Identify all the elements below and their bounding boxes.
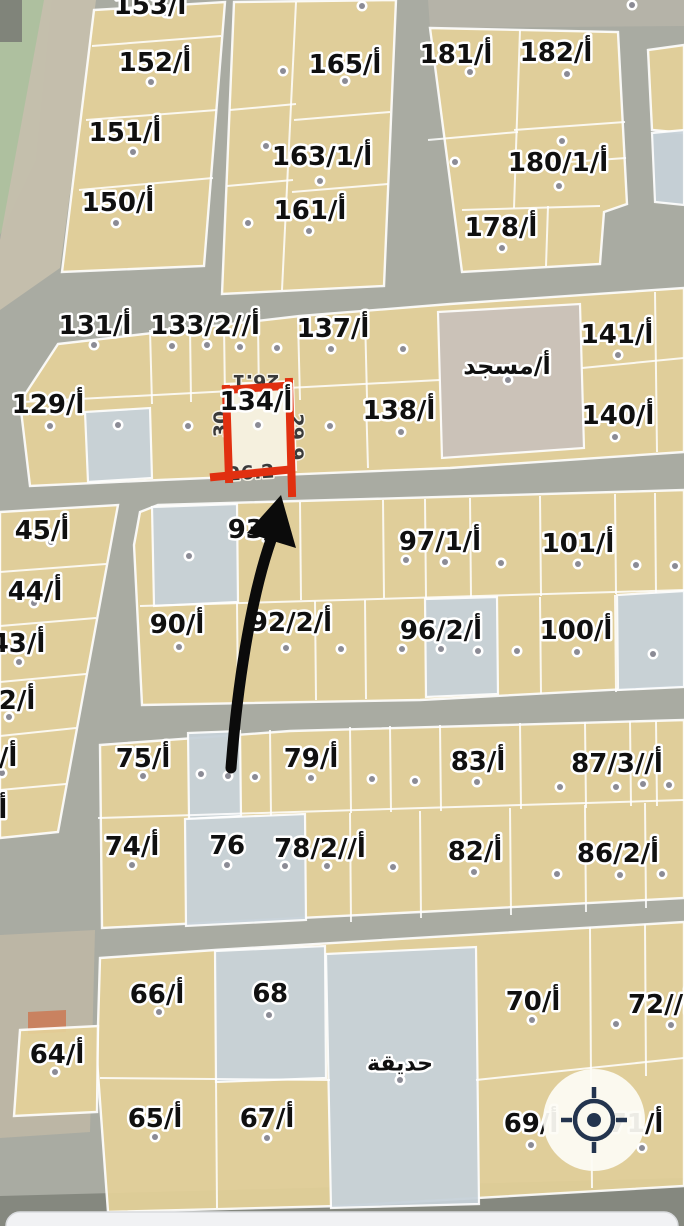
parcel-label: أ/131	[59, 308, 132, 341]
parcel-boundary-line	[440, 725, 441, 811]
parcel-dot-center	[198, 771, 204, 777]
parcel-dot-center	[499, 245, 505, 251]
parcel-label: أ/44	[8, 574, 63, 607]
parcel-label: أ/152	[119, 45, 192, 78]
parcel-label: أ/141	[581, 317, 654, 350]
parcel-dot-center	[47, 423, 53, 429]
parcel-label: أ//78/2	[274, 831, 366, 864]
parcel-dot-center	[557, 784, 563, 790]
cell-blue-right-100	[617, 591, 684, 690]
parcel-label: أ/92/2	[250, 605, 332, 638]
parcel-label: أ/134	[220, 384, 293, 417]
parcel-label: أ/138	[363, 393, 436, 426]
parcel-label: أ/180/1	[508, 145, 608, 178]
parcel-label: أ/150	[82, 185, 155, 218]
parcel-boundary-line	[615, 494, 616, 594]
parcel-label: حديقة	[367, 1052, 433, 1077]
parcel-dot-center	[113, 220, 119, 226]
parcel-dot-center	[16, 659, 22, 665]
top-right-road	[428, 0, 684, 28]
parcel-dot-center	[672, 563, 678, 569]
parcel-boundary-line	[510, 808, 511, 915]
parcel-label: أ/137	[297, 311, 370, 344]
parcel-label: أ/101	[542, 526, 615, 559]
parcel-label: أ/مسجد	[463, 350, 550, 380]
parcel-dot-center	[264, 1135, 270, 1141]
parcel-label: أ/181	[420, 37, 493, 70]
cell-blue-above-90	[152, 504, 238, 606]
parcel-label: أ/75	[116, 741, 171, 774]
parcel-dot-center	[280, 68, 286, 74]
parcel-dot-center	[306, 228, 312, 234]
parcel-dot-center	[615, 352, 621, 358]
parcel-label: أ/42	[0, 683, 35, 716]
parcel-dot-center	[390, 864, 396, 870]
parcel-dot-center	[152, 1134, 158, 1140]
parcel-label: أ/96/2	[400, 613, 482, 646]
parcel-dot-center	[225, 773, 231, 779]
parcel-label: أ/163/1	[272, 139, 372, 172]
parcel-label: أ/178	[465, 210, 538, 243]
parcel-dot-center	[308, 775, 314, 781]
parcel-label: أ//72	[628, 987, 684, 1020]
parcel-label: أ/43	[0, 626, 45, 659]
parcel-dot-center	[176, 644, 182, 650]
parcel-label: أ/153	[114, 0, 187, 21]
parcel-dot-center	[130, 149, 136, 155]
parcel-dot-center	[612, 434, 618, 440]
parcel-label: أ/41	[0, 740, 17, 773]
parcel-dot-center	[338, 646, 344, 652]
parcel-dot-center	[556, 183, 562, 189]
parcel-label: أ/86/2	[577, 836, 659, 869]
parcel-dot-center	[498, 560, 504, 566]
parcel-boundary-line	[350, 727, 351, 813]
parcel-label: أ/83	[451, 744, 506, 777]
parcel-boundary-line	[383, 500, 384, 598]
parcel-label: أ/100	[540, 613, 613, 646]
parcel-dot-center	[255, 422, 261, 428]
parcel-dot-center	[559, 138, 565, 144]
parcel-dot-center	[412, 778, 418, 784]
parcel-label: أ/97/1	[399, 524, 481, 557]
parcel-label: أ/161	[274, 193, 347, 226]
parcel-dot-center	[245, 220, 251, 226]
parcel-label: أ//133/2	[150, 308, 260, 341]
parcel-label: أ/140	[582, 398, 655, 431]
parcel-dot-center	[629, 2, 635, 8]
parcel-dot-center	[639, 1145, 645, 1151]
parcel-dot-center	[263, 143, 269, 149]
crosshair-center-dot	[587, 1113, 601, 1127]
parcel-label: أ/40	[0, 792, 7, 825]
parcel-label: أ/64	[30, 1037, 85, 1070]
parcel-dot-center	[327, 423, 333, 429]
parcel-dot-center	[224, 862, 230, 868]
parcel-dot-center	[204, 342, 210, 348]
parcel-boundary-line	[350, 813, 351, 922]
parcel-dot-center	[554, 871, 560, 877]
parcel-dot-center	[613, 784, 619, 790]
parcel-dot-center	[328, 346, 334, 352]
parcel-boundary-line	[615, 595, 616, 692]
parcel-label: أ/165	[309, 47, 382, 80]
parcel-dot-center	[475, 648, 481, 654]
parcel-dot-center	[369, 776, 375, 782]
parcel-boundary-line	[365, 600, 366, 699]
parcel-boundary-line	[420, 811, 421, 918]
map-viewport[interactable]: 26.126.23029.9أ/153أ/152أ/151أ/150أ/165أ…	[0, 0, 684, 1226]
parcel-dot-center	[633, 562, 639, 568]
parcel-dot-center	[442, 559, 448, 565]
map-canvas[interactable]: 26.126.23029.9أ/153أ/152أ/151أ/150أ/165أ…	[0, 0, 684, 1226]
parcel-dot-center	[575, 561, 581, 567]
parcel-dot-center	[452, 159, 458, 165]
parcel-dot-center	[471, 869, 477, 875]
parcel-dot-center	[640, 781, 646, 787]
parcel-dot-center	[274, 345, 280, 351]
parcel-dot-center	[613, 1021, 619, 1027]
parcel-label: أ/66	[130, 977, 185, 1010]
parcel-dot-center	[529, 1017, 535, 1023]
parcel-boundary-line	[300, 502, 301, 600]
cell-blue-mid	[85, 408, 152, 482]
parcel-label: أ/129	[12, 387, 85, 420]
parcel-dot-center	[574, 649, 580, 655]
parcel-dot-center	[650, 651, 656, 657]
parcel-dot-center	[397, 1077, 403, 1083]
parcel-dot-center	[528, 1142, 534, 1148]
parcel-dot-center	[398, 429, 404, 435]
parcel-dot-center	[438, 646, 444, 652]
parcel-dot-center	[169, 343, 175, 349]
parcel-dot-center	[115, 422, 121, 428]
parcel-dot-center	[317, 178, 323, 184]
parcel-dot-center	[283, 645, 289, 651]
parcel-boundary-line	[390, 726, 391, 812]
parcel-dot-center	[399, 646, 405, 652]
parcel-label: أ/182	[520, 35, 593, 68]
bottom-sheet-handle[interactable]	[6, 1212, 678, 1226]
parcel-label: أ/90	[150, 607, 205, 640]
cell-blue-far-right	[652, 130, 684, 205]
parcel-dot-center	[400, 346, 406, 352]
parcel-boundary-line	[655, 493, 656, 593]
parcel-dot-center	[252, 774, 258, 780]
parcel-dot-center	[266, 1012, 272, 1018]
parcel-label: أ/70	[506, 984, 561, 1017]
parcel-label: أ/45	[15, 513, 70, 546]
parcel-label: أ/79	[284, 741, 339, 774]
parcel-label: 68	[252, 979, 287, 1009]
parcel-label: أ//87/3	[571, 746, 663, 779]
dark-corner-building	[0, 0, 22, 42]
parcel-dot-center	[474, 779, 480, 785]
parcel-dot-center	[564, 71, 570, 77]
parcel-label: أ/74	[105, 829, 160, 862]
parcel-label: أ/67	[240, 1101, 295, 1134]
parcel-label: أ/82	[448, 834, 503, 867]
parcel-dot-center	[185, 423, 191, 429]
parcel-boundary-line	[270, 730, 271, 816]
parcel-dot-center	[186, 553, 192, 559]
parcel-dot-center	[403, 557, 409, 563]
parcel-dot-center	[514, 648, 520, 654]
parcel-boundary-line	[520, 723, 521, 809]
block-far-right-top	[648, 45, 684, 133]
parcel-dot-center	[668, 1022, 674, 1028]
parcel-dot-center	[129, 862, 135, 868]
parcel-dot-center	[659, 871, 665, 877]
parcel-boundary-line	[216, 1078, 217, 1208]
parcel-label: أ/151	[89, 115, 162, 148]
parcel-boundary-line	[590, 927, 591, 1080]
parcel-label: 76	[209, 831, 244, 861]
parcel-dot-center	[617, 872, 623, 878]
parcel-dot-center	[91, 342, 97, 348]
parcel-dot-center	[237, 344, 243, 350]
parcel-dot-center	[666, 782, 672, 788]
parcel-dot-center	[148, 79, 154, 85]
parcel-label: أ/65	[128, 1101, 183, 1134]
parcel-dot-center	[359, 3, 365, 9]
